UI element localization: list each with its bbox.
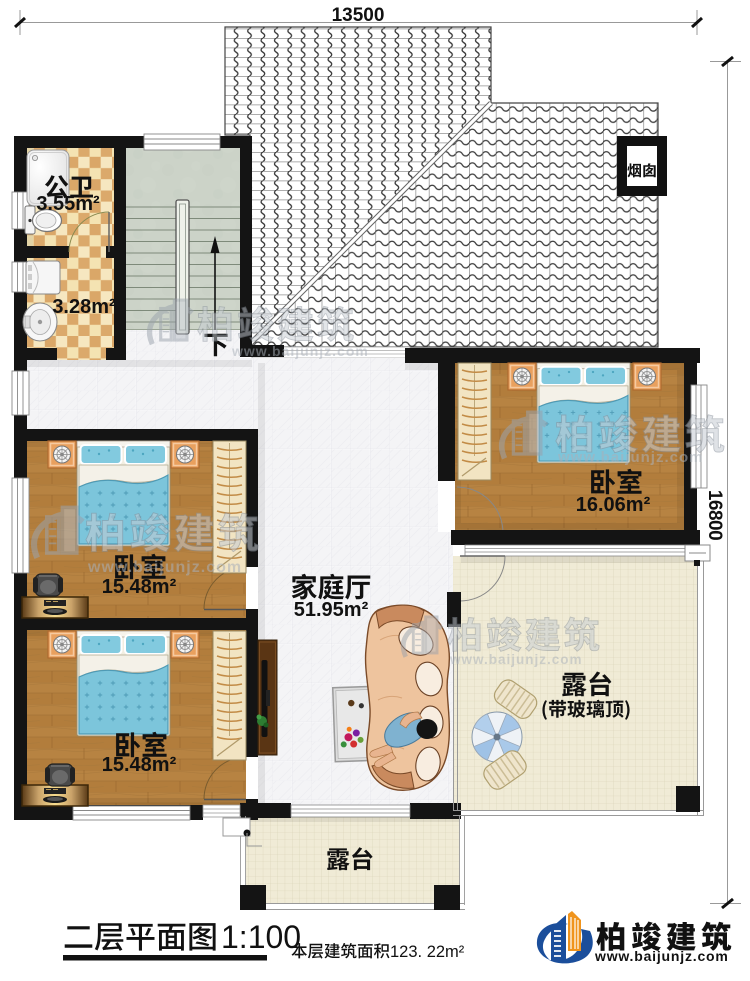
svg-text:15.48m²: 15.48m² xyxy=(102,576,177,598)
svg-text:16.06m²: 16.06m² xyxy=(576,494,651,516)
svg-text:www.baijunjz.com: www.baijunjz.com xyxy=(594,948,729,964)
svg-text:www.baijunjz.com: www.baijunjz.com xyxy=(231,343,369,359)
svg-text:13500: 13500 xyxy=(332,5,385,26)
svg-text:1:100: 1:100 xyxy=(221,919,301,955)
svg-text:51.95m²: 51.95m² xyxy=(294,599,369,621)
svg-text:www.baijunjz.com: www.baijunjz.com xyxy=(557,449,703,466)
svg-text:123. 22m²: 123. 22m² xyxy=(390,943,465,961)
svg-text:15.48m²: 15.48m² xyxy=(102,754,177,776)
svg-text:www.baijunjz.com: www.baijunjz.com xyxy=(449,652,583,667)
svg-text:3.28m²: 3.28m² xyxy=(52,296,116,318)
svg-text:16800: 16800 xyxy=(704,490,725,540)
svg-text:www.baijunjz.com: www.baijunjz.com xyxy=(87,559,242,576)
svg-text:3.55m²: 3.55m² xyxy=(36,193,100,215)
